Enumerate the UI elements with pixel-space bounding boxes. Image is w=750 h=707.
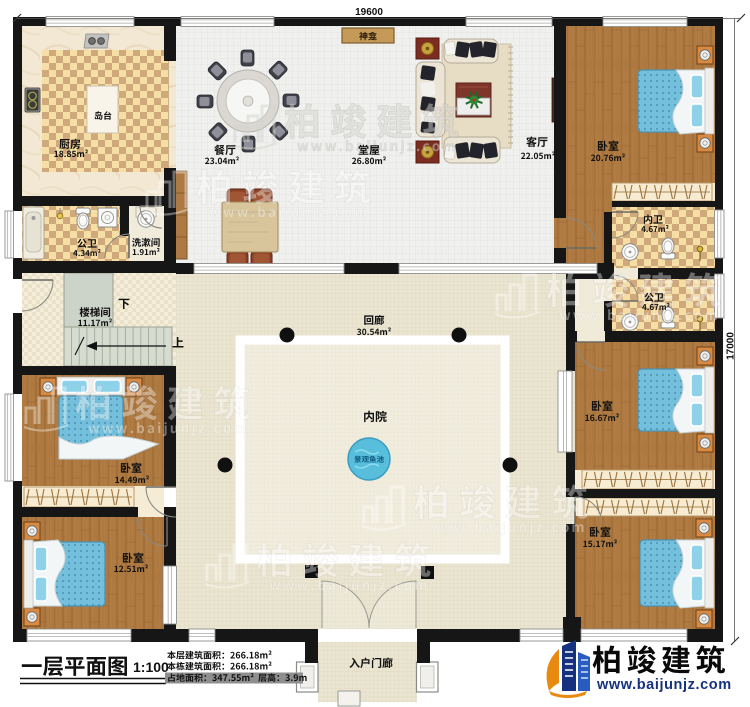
svg-text:www.baijunjz.com: www.baijunjz.com [596,677,732,693]
svg-text:19600: 19600 [355,7,383,18]
svg-text:1:100: 1:100 [133,659,169,675]
svg-text:17000: 17000 [726,332,737,360]
